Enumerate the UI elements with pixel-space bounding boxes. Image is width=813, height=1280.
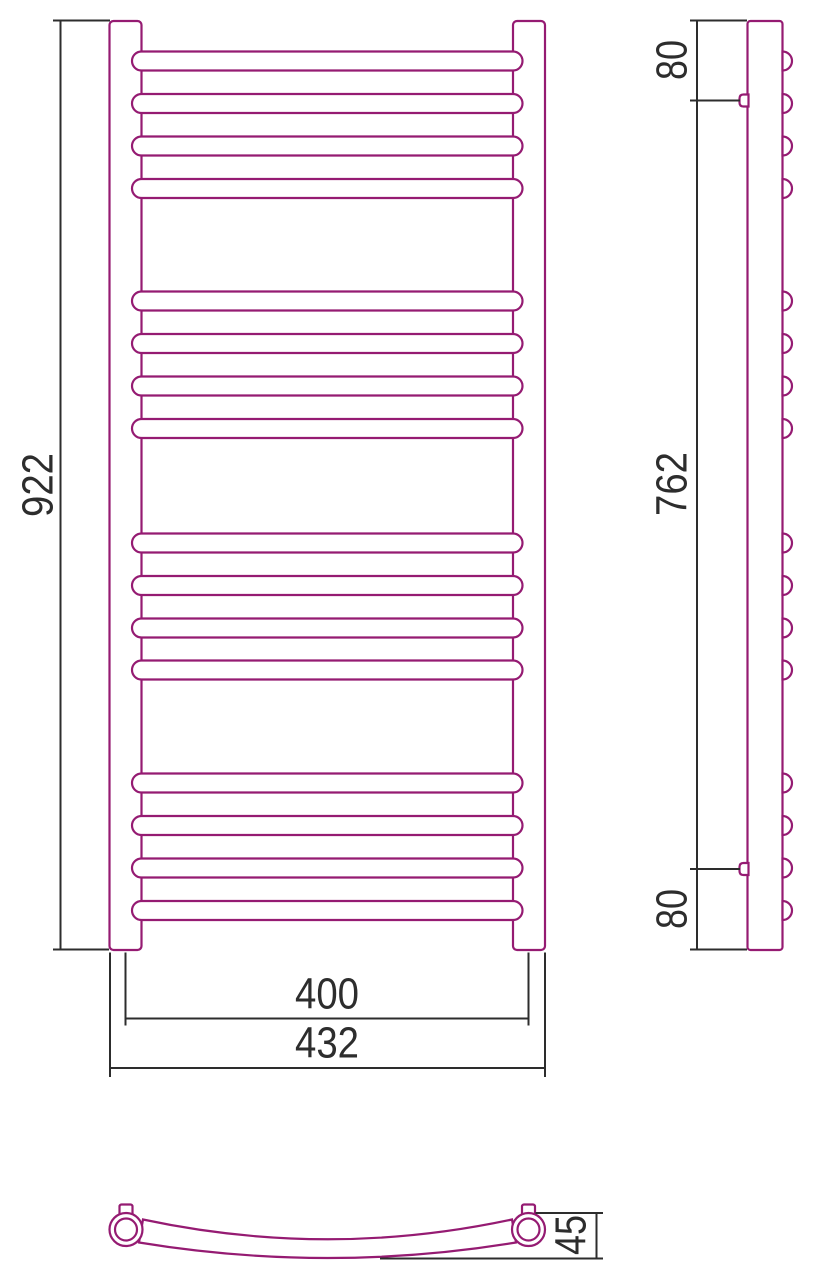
front-view: 922 400 432 bbox=[14, 20, 546, 1077]
side-rung-bump bbox=[783, 52, 793, 71]
side-rung-bump bbox=[783, 292, 793, 311]
front-rung bbox=[132, 859, 523, 878]
dim-width-overall-label: 432 bbox=[295, 1019, 359, 1068]
front-rung bbox=[132, 534, 523, 553]
side-rung-bump bbox=[783, 901, 793, 920]
side-rung-bump bbox=[783, 534, 793, 553]
plan-right-riser-inner bbox=[518, 1219, 540, 1241]
front-rung bbox=[132, 661, 523, 680]
side-dimension-chain: 80 762 80 bbox=[648, 20, 748, 950]
side-rung-bump bbox=[783, 137, 793, 156]
side-rung-bumps bbox=[783, 52, 793, 921]
front-rung bbox=[132, 94, 523, 113]
side-rung-bump bbox=[783, 94, 793, 113]
side-rung-bump bbox=[783, 661, 793, 680]
dim-top-offset-label: 80 bbox=[648, 40, 697, 80]
plan-view: 45 bbox=[110, 1205, 604, 1259]
side-rung-bump bbox=[783, 619, 793, 638]
plan-left-riser-inner bbox=[115, 1219, 137, 1241]
side-rung-bump bbox=[783, 179, 793, 198]
side-rung-bump bbox=[783, 377, 793, 396]
side-rung-bump bbox=[783, 576, 793, 595]
side-rung-bump bbox=[783, 774, 793, 793]
front-rung bbox=[132, 816, 523, 835]
side-rung-bump bbox=[783, 334, 793, 353]
dim-bottom-offset-label: 80 bbox=[648, 889, 697, 929]
side-bracket-bottom bbox=[740, 863, 749, 875]
side-rung-bump bbox=[783, 419, 793, 438]
side-profile bbox=[748, 21, 783, 950]
front-width-dimensions: 400 432 bbox=[110, 953, 545, 1078]
side-view: 80 762 80 bbox=[648, 20, 793, 950]
plan-rung-tube bbox=[139, 1220, 516, 1259]
dim-bracket-span-label: 762 bbox=[648, 452, 697, 516]
front-rung bbox=[132, 137, 523, 156]
dim-height-label: 922 bbox=[14, 453, 63, 517]
dim-depth-label: 45 bbox=[547, 1215, 596, 1255]
front-rung bbox=[132, 576, 523, 595]
front-rung bbox=[132, 419, 523, 438]
dim-width-centers-label: 400 bbox=[295, 970, 359, 1019]
drawing-canvas: 922 400 432 bbox=[0, 0, 813, 1280]
front-rung bbox=[132, 292, 523, 311]
front-left-riser bbox=[110, 21, 142, 950]
side-bracket-top bbox=[740, 95, 749, 107]
front-rung bbox=[132, 901, 523, 920]
front-height-dimension: 922 bbox=[14, 20, 111, 950]
front-rung bbox=[132, 334, 523, 353]
front-rung bbox=[132, 179, 523, 198]
front-rung bbox=[132, 619, 523, 638]
front-rung bbox=[132, 377, 523, 396]
front-rungs bbox=[132, 52, 523, 921]
side-rung-bump bbox=[783, 859, 793, 878]
front-rung bbox=[132, 52, 523, 71]
front-right-riser bbox=[513, 21, 545, 950]
front-rung bbox=[132, 774, 523, 793]
towel-rail-drawing: 922 400 432 bbox=[0, 0, 813, 1280]
side-rung-bump bbox=[783, 816, 793, 835]
